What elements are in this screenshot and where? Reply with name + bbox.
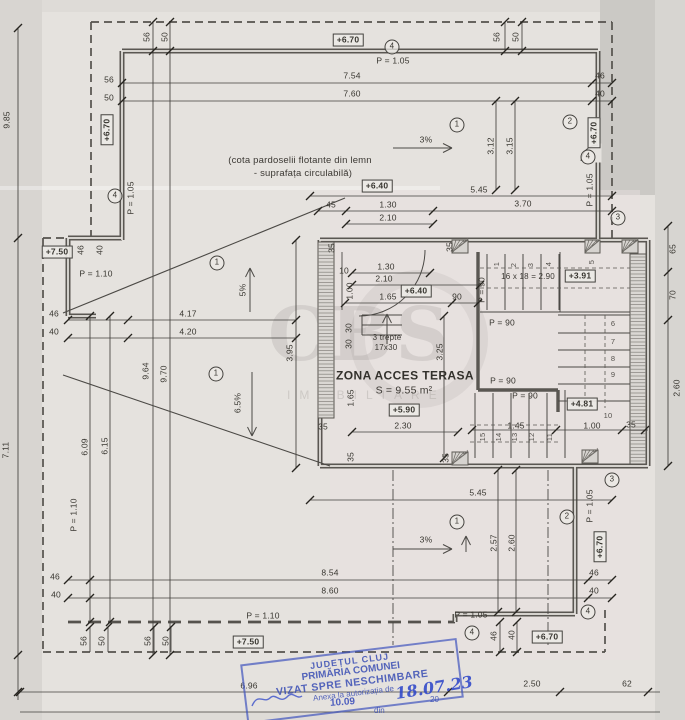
dimension-label: 3.15	[506, 137, 515, 154]
dimension-label: 46	[50, 573, 60, 582]
dimension-label: 45	[326, 201, 336, 210]
dimension-label: 50	[104, 94, 114, 103]
dimension-label: 1.45	[507, 422, 524, 431]
dimension-label: P = 90	[478, 277, 487, 303]
floor-note: (cota pardoselii flotante din lemn	[228, 156, 372, 166]
dimension-label: 56	[144, 636, 153, 646]
dimension-label: 56	[80, 636, 89, 646]
dimension-label: P = 1.05	[586, 173, 595, 206]
dimension-label: 40	[96, 245, 105, 255]
dimension-label: 35	[446, 242, 455, 252]
dimension-label: 3%	[420, 136, 433, 145]
stair-annotation: 17x30	[375, 344, 398, 352]
scanned-plan-page: CBS IMOBILIARE 56505650+6.704P = 1.05565…	[0, 0, 685, 720]
axis-bubble: 2	[563, 115, 578, 130]
level-marker: +6.70	[532, 631, 563, 644]
level-marker: +6.40	[401, 285, 432, 298]
axis-bubble: 3	[605, 473, 620, 488]
plan-labels-layer: 56505650+6.704P = 1.0556507.547.6046409.…	[0, 0, 685, 720]
step-number: 4	[545, 262, 553, 266]
axis-bubble: 4	[108, 189, 123, 204]
room-area: S = 9.55 m²	[376, 385, 433, 396]
step-number: 11	[546, 433, 554, 441]
dimension-label: 1.65	[347, 389, 356, 406]
step-number: 9	[611, 371, 615, 379]
dimension-label: 35	[328, 243, 337, 253]
dimension-label: P = 90	[489, 319, 515, 328]
dimension-label: 62	[622, 680, 632, 689]
dimension-label: 50	[98, 636, 107, 646]
dimension-label: P = 1.10	[246, 612, 279, 621]
dimension-label: 50	[161, 32, 170, 42]
dimension-label: 56	[104, 76, 114, 85]
dimension-label: 1.00	[583, 422, 600, 431]
step-number: 7	[611, 338, 615, 346]
dimension-label: P = 90	[490, 377, 516, 386]
floor-note: - suprafața circulabilă)	[254, 169, 352, 179]
dimension-label: 1.30	[377, 263, 394, 272]
dimension-label: 2.10	[379, 214, 396, 223]
dimension-label: 40	[595, 90, 605, 99]
dimension-label: 2.10	[375, 275, 392, 284]
dimension-label: P = 1.05	[586, 489, 595, 522]
level-marker: +6.70	[594, 532, 607, 563]
room-name: ZONA ACCES TERASA	[336, 370, 474, 383]
level-marker: +7.50	[233, 636, 264, 649]
dimension-label: 2.60	[508, 534, 517, 551]
step-number: 14	[495, 433, 503, 442]
axis-bubble: 1	[450, 118, 465, 133]
dimension-label: 9.85	[3, 111, 12, 128]
dimension-label: 65	[669, 244, 678, 254]
dimension-label: 2.60	[673, 379, 682, 396]
dimension-label: 35	[442, 453, 451, 463]
dimension-label: 6.15	[101, 437, 110, 454]
dimension-label: 10	[339, 267, 349, 276]
dimension-label: 3.12	[487, 137, 496, 154]
level-marker: +7.50	[42, 246, 73, 259]
dimension-label: P = 1.05	[454, 611, 487, 620]
dimension-label: 3%	[420, 536, 433, 545]
dimension-label: 5.45	[470, 186, 487, 195]
level-marker: +3.91	[565, 270, 596, 283]
dimension-label: 90	[452, 293, 462, 302]
dimension-label: P = 1.05	[376, 57, 409, 66]
dimension-label: P = 1.10	[70, 498, 79, 531]
level-marker: +6.70	[333, 34, 364, 47]
step-number: 10	[604, 412, 613, 420]
dimension-label: 5.45	[469, 489, 486, 498]
dimension-label: 40	[49, 328, 59, 337]
step-number: 15	[479, 433, 487, 442]
dimension-label: 9.64	[142, 362, 151, 379]
dimension-label: 7.54	[343, 72, 360, 81]
step-number: 3	[527, 263, 535, 267]
dimension-label: 1.00	[346, 282, 355, 299]
dimension-label: 4.17	[179, 310, 196, 319]
dimension-label: 40	[51, 591, 61, 600]
dimension-label: 35	[347, 452, 356, 462]
dimension-label: P = 1.05	[127, 181, 136, 214]
stamp-number-handwritten: 10.09	[330, 696, 356, 709]
dimension-label: 1.65	[379, 293, 396, 302]
dimension-label: 40	[589, 587, 599, 596]
dimension-label: 50	[512, 32, 521, 42]
stair-annotation: 3 trepte	[373, 334, 402, 342]
dimension-label: P = 1.10	[79, 270, 112, 279]
step-number: 13	[511, 433, 519, 442]
step-number: 12	[528, 433, 536, 442]
dimension-label: 50	[162, 636, 171, 646]
dimension-label: 8.60	[321, 587, 338, 596]
dimension-label: 9.70	[160, 365, 169, 382]
dimension-label: 7.60	[343, 90, 360, 99]
dimension-label: 3.95	[286, 344, 295, 361]
dimension-label: 3.70	[514, 200, 531, 209]
dimension-label: 7.11	[2, 442, 11, 459]
dimension-label: 70	[669, 290, 678, 300]
dimension-label: 46	[77, 245, 86, 255]
axis-bubble: 1	[450, 515, 465, 530]
step-number: 5	[588, 260, 596, 264]
dimension-label: 35	[626, 421, 636, 430]
dimension-label: 8.54	[321, 569, 338, 578]
dimension-label: 56	[493, 32, 502, 42]
step-number: 6	[611, 320, 615, 328]
dimension-label: 6.5%	[234, 393, 243, 413]
dimension-label: 1.30	[379, 201, 396, 210]
axis-bubble: 1	[210, 256, 225, 271]
step-number: 8	[611, 355, 615, 363]
dimension-label: 30	[345, 339, 354, 349]
dimension-label: P = 90	[512, 392, 538, 401]
axis-bubble: 4	[581, 150, 596, 165]
dimension-label: 46	[589, 569, 599, 578]
dimension-label: 2.50	[523, 680, 540, 689]
level-marker: +6.40	[362, 180, 393, 193]
dimension-label: 56	[143, 32, 152, 42]
dimension-label: 4.20	[179, 328, 196, 337]
dimension-label: 30	[345, 323, 354, 333]
axis-bubble: 4	[465, 626, 480, 641]
axis-bubble: 2	[560, 510, 575, 525]
stair-annotation: 16 x 18 = 2.90	[501, 273, 555, 281]
dimension-label: 2.30	[394, 422, 411, 431]
axis-bubble: 4	[385, 40, 400, 55]
axis-bubble: 1	[209, 367, 224, 382]
stamp-word-din: din	[374, 706, 385, 715]
level-marker: +6.70	[101, 115, 114, 146]
step-number: 2	[510, 263, 518, 267]
level-marker: +5.90	[389, 404, 420, 417]
axis-bubble: 4	[581, 605, 596, 620]
dimension-label: 6.09	[81, 438, 90, 455]
axis-bubble: 3	[611, 211, 626, 226]
dimension-label: 46	[595, 72, 605, 81]
step-number: 1	[493, 262, 501, 266]
dimension-label: 35	[318, 423, 328, 432]
dimension-label: 5%	[239, 284, 248, 297]
dimension-label: 46	[490, 631, 499, 641]
dimension-label: 40	[508, 630, 517, 640]
level-marker: +4.81	[567, 398, 598, 411]
level-marker: +6.70	[588, 118, 601, 149]
dimension-label: 2.57	[490, 534, 499, 551]
dimension-label: 46	[49, 310, 59, 319]
dimension-label: 3.25	[436, 343, 445, 360]
